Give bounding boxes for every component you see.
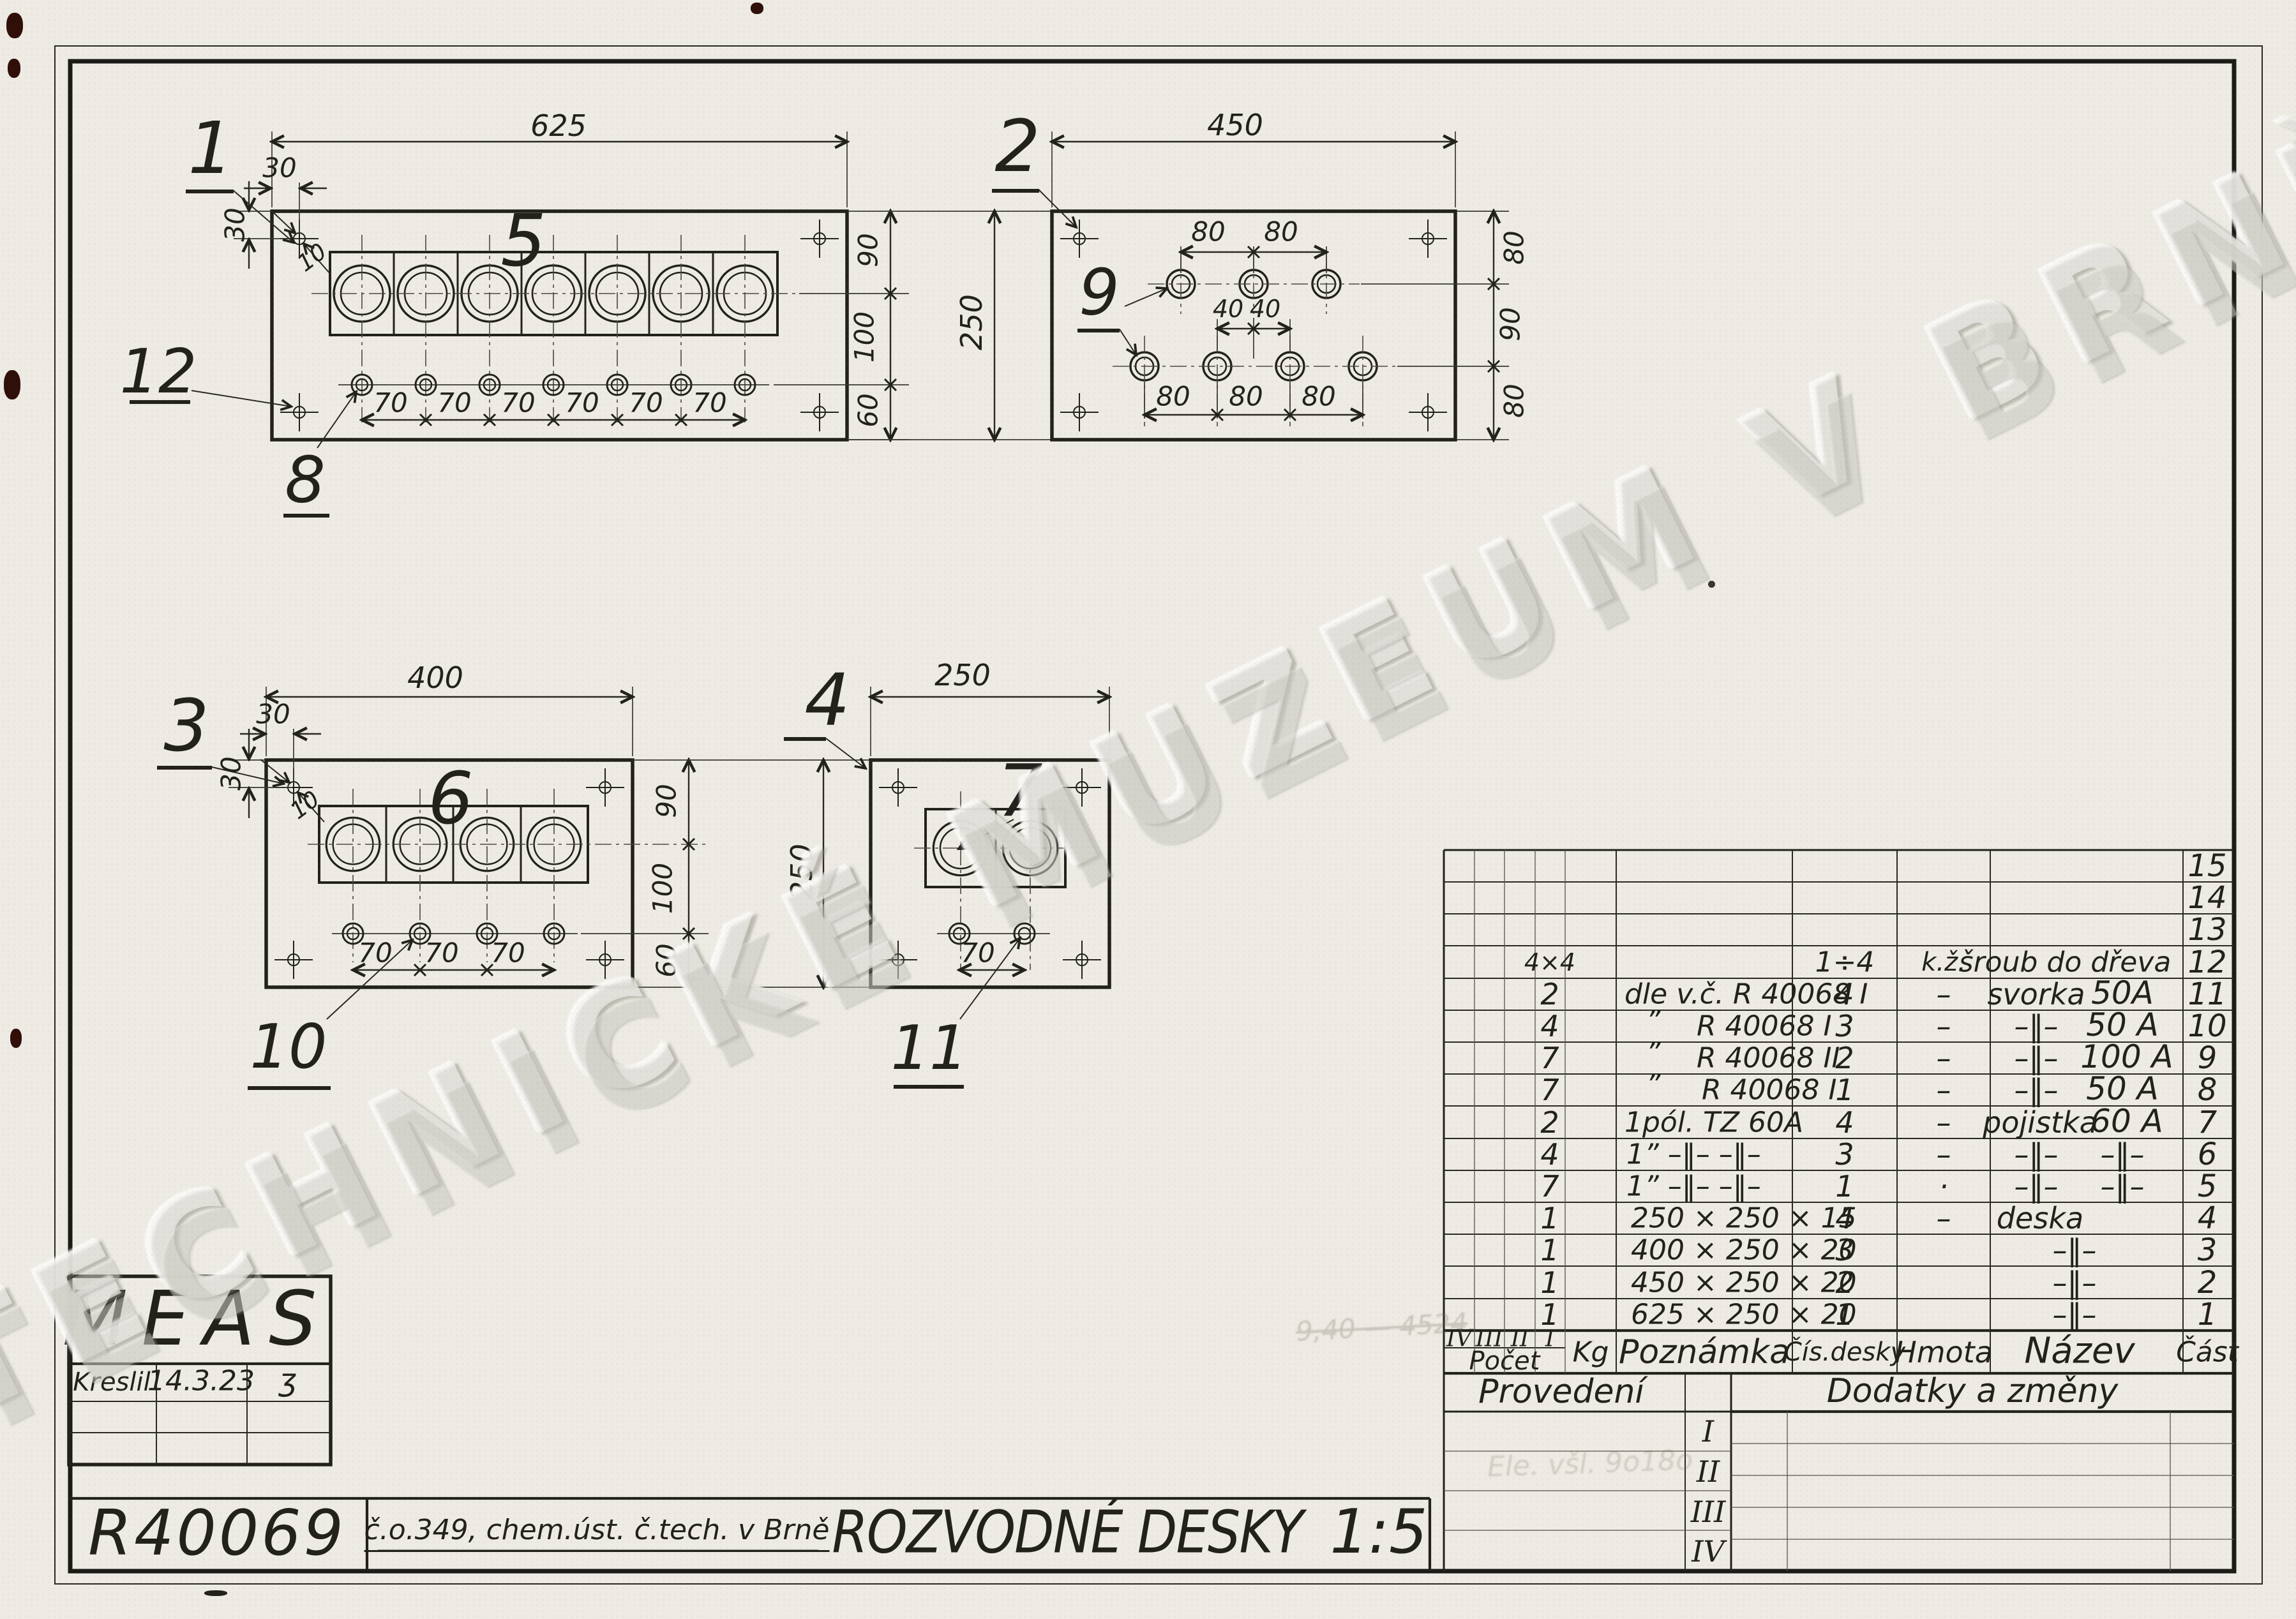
table-header-kg: Kg	[1573, 1336, 1609, 1369]
dim-70-6: 70	[693, 387, 726, 419]
name-1: –‖–	[2053, 1297, 2097, 1332]
desk-5: 1	[1835, 1169, 1854, 1204]
fuse-row-callout-5: 5	[500, 200, 546, 283]
desk-2: 2	[1835, 1265, 1854, 1300]
scan-speck	[1708, 581, 1715, 588]
dim-450: 450	[1207, 108, 1263, 142]
quote-10: ”	[1646, 1005, 1661, 1038]
note-5: 1” –‖– –‖–	[1626, 1170, 1761, 1203]
dim-80-t2: 80	[1264, 216, 1298, 248]
qty-7: 2	[1540, 1105, 1559, 1140]
qty-9: 7	[1540, 1041, 1559, 1075]
part-no-10: 10	[2187, 1008, 2226, 1044]
part-no-7: 7	[2198, 1105, 2217, 1140]
note-6: 1” –‖– –‖–	[1626, 1138, 1761, 1171]
hm-9: –	[1937, 1041, 1951, 1075]
name-12: šroub do dřeva	[1959, 946, 2172, 979]
name2-6: –‖–	[2101, 1137, 2145, 1172]
desk-3: 3	[1835, 1233, 1854, 1267]
name-3: –‖–	[2053, 1233, 2097, 1267]
dim-70-3c: 70	[491, 937, 525, 969]
qty-10: 4	[1540, 1009, 1559, 1043]
scan-blot	[8, 59, 20, 78]
dim-90: 90	[853, 233, 884, 267]
hole-callout-9: 9	[1079, 255, 1120, 330]
table-header-pocet: Počet	[1469, 1347, 1540, 1376]
qty-4: 1	[1540, 1201, 1559, 1235]
hm-5: ·	[1939, 1169, 1949, 1204]
part-no-9: 9	[2198, 1040, 2217, 1076]
part-no-8: 8	[2198, 1072, 2217, 1108]
hole-callout-10: 10	[250, 1012, 327, 1082]
dim-30-v: 30	[220, 207, 251, 241]
note-7: 1pól. TZ 60A	[1624, 1107, 1803, 1139]
dim-40-1: 40	[1213, 295, 1243, 323]
drawing-sheet: 1 5 8 12 625 30 30 10 70 70 70 70 70 70 …	[0, 0, 2296, 1619]
dim-70-2: 70	[437, 387, 471, 419]
drawing-number: R40069	[88, 1497, 346, 1570]
plate-1-drawing	[130, 131, 1051, 516]
dim-80-t1: 80	[1191, 216, 1225, 248]
provedeni-row-i: I	[1702, 1414, 1714, 1449]
provedeni-title: Provedení	[1478, 1373, 1644, 1411]
name2-5: –‖–	[2101, 1169, 2145, 1204]
provedeni-row-iv: IV	[1692, 1534, 1724, 1569]
desk-9: 2	[1835, 1041, 1854, 1075]
dim-80-r1: 80	[1499, 230, 1530, 264]
name-11: svorka	[1987, 977, 2085, 1011]
provedeni-row-ii: II	[1697, 1454, 1720, 1489]
plate-1-callout: 1	[188, 107, 233, 190]
quote-9: ”	[1646, 1037, 1661, 1070]
desk-1: 1	[1835, 1297, 1854, 1332]
hm-10: –	[1937, 1009, 1951, 1043]
table-header-cisdesky: Čís.desky	[1784, 1338, 1905, 1367]
note-11: dle v.č. R 40068 I	[1624, 978, 1868, 1011]
plate-4-callout: 4	[804, 659, 850, 742]
part-no-14: 14	[2187, 880, 2226, 916]
qty-1: 1	[1540, 1297, 1559, 1332]
part-no-6: 6	[2198, 1137, 2217, 1172]
note-1: 625 × 250 × 20	[1631, 1299, 1857, 1331]
dim-90-r: 90	[1495, 307, 1526, 341]
plate-3-callout: 3	[163, 685, 209, 768]
desk-7: 4	[1835, 1105, 1854, 1140]
dim-100-3: 100	[647, 863, 679, 914]
desk-11: 4	[1835, 977, 1854, 1011]
dodatky-title: Dodatky a změny	[1827, 1372, 2119, 1410]
scan-blot	[6, 13, 23, 38]
part-no-5: 5	[2198, 1168, 2217, 1204]
note-3: 400 × 250 × 20	[1631, 1234, 1857, 1267]
name-9: –‖–	[2015, 1041, 2059, 1075]
qty-8: 7	[1540, 1073, 1559, 1107]
note-10: R 40068 I	[1697, 1010, 1832, 1043]
note-4: 250 × 250 × 15	[1631, 1202, 1857, 1235]
part-no-11: 11	[2187, 976, 2226, 1012]
scan-blot	[10, 1029, 22, 1048]
dim-400: 400	[407, 660, 463, 695]
dim-60: 60	[853, 393, 884, 427]
name2-7: 60 A	[2090, 1103, 2163, 1140]
provedeni-row-iii: III	[1691, 1495, 1726, 1529]
dim-70-4: 70	[565, 387, 599, 419]
part-no-15: 15	[2187, 848, 2226, 884]
dim-625: 625	[530, 108, 587, 143]
name-8: –‖–	[2015, 1073, 2059, 1107]
hm-6: –	[1937, 1137, 1951, 1172]
qty-11: 2	[1540, 977, 1559, 1011]
fuse-row-callout-6: 6	[428, 757, 473, 840]
dim-80-b3: 80	[1302, 381, 1335, 412]
dim-100: 100	[849, 311, 880, 362]
dim-70-5: 70	[629, 387, 663, 419]
dim-90-3: 90	[651, 784, 682, 817]
part-no-3: 3	[2198, 1232, 2217, 1268]
drawing-scale: 1:5	[1330, 1497, 1428, 1567]
dim-70-3: 70	[501, 387, 535, 419]
dim-250-4: 250	[934, 658, 991, 692]
desk-10: 3	[1835, 1009, 1854, 1043]
qty-12: 4×4	[1524, 948, 1575, 976]
dim-40-2: 40	[1250, 295, 1280, 323]
dim-30-v3: 30	[216, 756, 247, 790]
scan-mark	[204, 1590, 227, 1596]
qty-5: 7	[1540, 1169, 1559, 1204]
qty-2: 1	[1540, 1265, 1559, 1300]
desk-4: 4	[1835, 1201, 1854, 1235]
plate-2-callout: 2	[994, 105, 1040, 188]
name-5: –‖–	[2015, 1169, 2059, 1204]
part-no-1: 1	[2198, 1297, 2217, 1332]
dim-80-b2: 80	[1229, 381, 1263, 412]
part-no-12: 12	[2187, 944, 2226, 980]
name-2: –‖–	[2053, 1265, 2097, 1300]
table-header-cast: Část	[2176, 1336, 2239, 1369]
drawing-title: ROZVODNÉ DESKY	[832, 1498, 1302, 1567]
name-4: deska	[1997, 1201, 2083, 1235]
table-header-nazev: Název	[2024, 1331, 2135, 1372]
corner-hole-callout-12: 12	[120, 337, 197, 407]
scan-blot	[751, 3, 763, 14]
kreslil-signature: ʒ	[279, 1362, 297, 1398]
desk-12: 1÷4	[1815, 946, 1875, 979]
name-6: –‖–	[2015, 1137, 2059, 1172]
note-2: 450 × 250 × 20	[1631, 1267, 1857, 1299]
dim-80-b1: 80	[1156, 381, 1190, 412]
name-10: –‖–	[2015, 1009, 2059, 1043]
desk-6: 3	[1835, 1137, 1854, 1172]
note-9: R 40068 II	[1697, 1042, 1840, 1075]
hole-callout-11: 11	[891, 1013, 968, 1084]
hm-11: –	[1937, 977, 1951, 1011]
scan-blot	[4, 370, 20, 399]
part-no-13: 13	[2187, 912, 2226, 948]
qty-3: 1	[1540, 1233, 1559, 1267]
note-8: R 40068 I	[1702, 1074, 1837, 1107]
hm-8: –	[1937, 1073, 1951, 1107]
table-header-hmota: Hmota	[1895, 1335, 1993, 1369]
table-header-poznamka: Poznámka	[1619, 1333, 1790, 1371]
dim-70-3b: 70	[424, 937, 458, 969]
dim-30-h: 30	[262, 153, 296, 184]
part-no-4: 4	[2198, 1200, 2217, 1236]
dim-250: 250	[954, 294, 989, 350]
desk-8: 1	[1835, 1073, 1854, 1107]
dim-30-h3: 30	[256, 699, 290, 730]
hm-4: –	[1937, 1201, 1951, 1235]
dim-70-1: 70	[373, 387, 407, 419]
dim-80-r2: 80	[1499, 384, 1530, 417]
qty-6: 4	[1540, 1137, 1559, 1172]
hole-callout-8: 8	[285, 443, 326, 518]
dim-70-3a: 70	[358, 937, 392, 969]
name-7: pojistka	[1983, 1105, 2097, 1140]
organization-text: č.o.349, chem.úst. č.tech. v Brně	[364, 1514, 830, 1552]
name2-8: 50 A	[2086, 1070, 2159, 1107]
hm-7: –	[1937, 1105, 1951, 1140]
part-no-2: 2	[2198, 1265, 2217, 1301]
quote-8: ”	[1646, 1069, 1661, 1101]
